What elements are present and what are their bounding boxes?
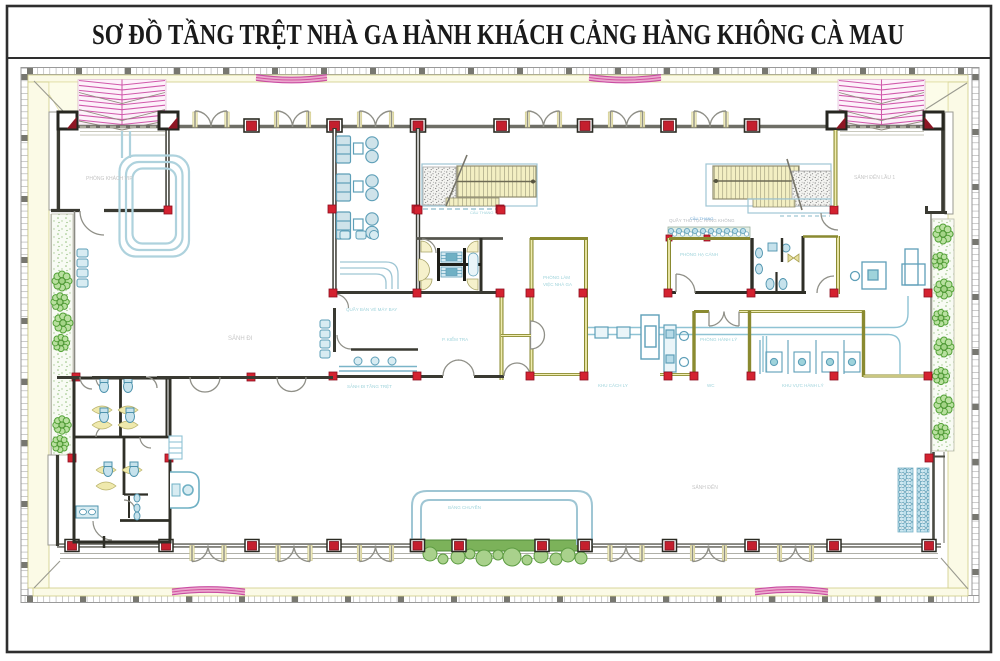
svg-text:PHÒNG LÀM: PHÒNG LÀM: [543, 274, 570, 280]
svg-text:SẢNH ĐẾN LẦU 1: SẢNH ĐẾN LẦU 1: [854, 174, 895, 181]
svg-text:QUẦY BÁN VÉ MÁY BAY: QUẦY BÁN VÉ MÁY BAY: [346, 306, 397, 312]
svg-text:PHÒNG HẠ CÁNH: PHÒNG HẠ CÁNH: [680, 251, 718, 257]
svg-text:VIỆC NHÀ GA: VIỆC NHÀ GA: [543, 280, 572, 287]
svg-text:BĂNG CHUYỀN: BĂNG CHUYỀN: [448, 504, 481, 510]
svg-text:WC: WC: [707, 383, 715, 388]
svg-text:P. KIỂM TRA: P. KIỂM TRA: [442, 336, 468, 342]
svg-text:PHÒNG HÀNH LÝ: PHÒNG HÀNH LÝ: [700, 336, 737, 342]
svg-text:KHU CÁCH LY: KHU CÁCH LY: [598, 382, 628, 388]
svg-text:SƠ ĐỒ TẦNG TRỆT NHÀ GA HÀNH KH: SƠ ĐỒ TẦNG TRỆT NHÀ GA HÀNH KHÁCH CẢNG H…: [92, 19, 904, 51]
svg-text:KHU VỰC HÀNH LÝ: KHU VỰC HÀNH LÝ: [782, 382, 824, 388]
svg-text:SẢNH ĐI TẦNG TRỆT: SẢNH ĐI TẦNG TRỆT: [347, 382, 392, 389]
svg-text:SẢNH ĐI: SẢNH ĐI: [228, 335, 253, 342]
svg-text:CẦU THANG: CẦU THANG: [470, 210, 493, 215]
svg-text:PHÒNG KHÁCH VIP: PHÒNG KHÁCH VIP: [86, 175, 133, 182]
svg-text:CẦU THANG: CẦU THANG: [690, 216, 713, 221]
svg-text:SẢNH ĐẾN: SẢNH ĐẾN: [692, 484, 718, 491]
